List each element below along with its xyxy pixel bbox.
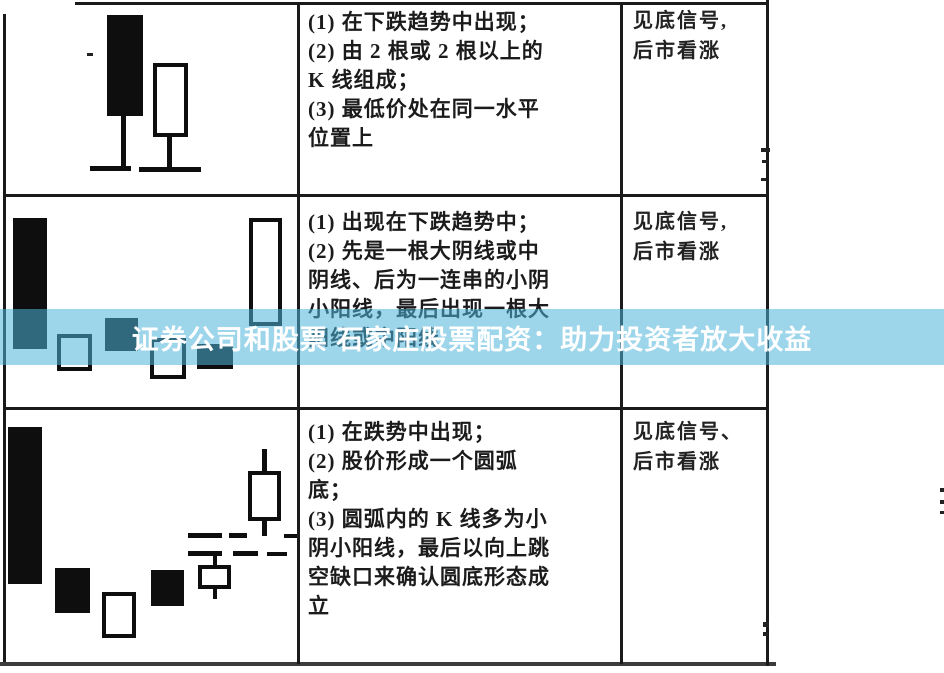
description-line: 底； bbox=[308, 476, 550, 505]
white-candle-body bbox=[198, 565, 231, 589]
description-line: 阴小阳线，最后以向上跳 bbox=[308, 534, 550, 563]
signal-line: 见底信号, bbox=[633, 6, 728, 36]
signal-line: 后市看涨 bbox=[633, 447, 743, 477]
description-line: 阴线、后为一连串的小阴 bbox=[308, 266, 550, 295]
base-level-dash bbox=[139, 167, 201, 172]
signal-cell-row2: 见底信号, 后市看涨 bbox=[633, 207, 728, 267]
signal-line: 见底信号、 bbox=[633, 417, 743, 447]
scan-artifact bbox=[940, 488, 944, 492]
description-line: (1) 在下跌趋势中出现； bbox=[308, 8, 544, 37]
gap-dash bbox=[229, 533, 247, 538]
scan-artifact bbox=[761, 148, 770, 152]
base-level-dash bbox=[90, 166, 131, 171]
white-candle-body bbox=[102, 592, 136, 638]
description-line: (2) 股价形成一个圆弧 bbox=[308, 447, 550, 476]
promo-banner[interactable]: 证券公司和股票 石家庄股票配资：助力投资者放大收益 bbox=[0, 309, 944, 365]
description-line: 空缺口来确认圆底形态成 bbox=[308, 563, 550, 592]
description-line: (1) 在跌势中出现； bbox=[308, 418, 550, 447]
scan-artifact bbox=[763, 632, 768, 636]
description-line: (3) 最低价处在同一水平 bbox=[308, 95, 544, 124]
gap-dash bbox=[284, 534, 297, 538]
candle-lower-wick bbox=[262, 521, 267, 536]
black-candle-body bbox=[8, 427, 42, 584]
scanned-candlestick-table-page: (1) 在下跌趋势中出现； (2) 由 2 根或 2 根以上的 K 线组成； (… bbox=[0, 0, 944, 673]
scan-artifact bbox=[763, 622, 769, 627]
white-candle-body bbox=[248, 471, 281, 521]
candle-lower-wick bbox=[121, 112, 126, 169]
black-candle-body bbox=[107, 15, 143, 116]
gap-dash bbox=[188, 551, 222, 556]
scan-artifact bbox=[761, 178, 766, 181]
candle-lower-wick bbox=[213, 589, 217, 599]
black-candle-body bbox=[55, 568, 90, 613]
signal-line: 后市看涨 bbox=[633, 36, 728, 66]
white-candle-body bbox=[153, 63, 188, 137]
gap-dash bbox=[188, 533, 222, 538]
promo-banner-text: 证券公司和股票 石家庄股票配资：助力投资者放大收益 bbox=[132, 318, 813, 357]
scan-artifact bbox=[940, 511, 944, 514]
description-line: (2) 由 2 根或 2 根以上的 bbox=[308, 37, 544, 66]
description-line: (1) 出现在下跌趋势中； bbox=[308, 208, 550, 237]
scan-artifact bbox=[87, 53, 93, 56]
description-line: 立 bbox=[308, 592, 550, 621]
scan-artifact bbox=[940, 500, 944, 504]
signal-cell-row3: 见底信号、 后市看涨 bbox=[633, 417, 743, 477]
gap-dash bbox=[233, 551, 258, 556]
description-line: (2) 先是一根大阴线或中 bbox=[308, 237, 550, 266]
candle-lower-wick bbox=[167, 134, 172, 170]
gap-dash bbox=[267, 552, 287, 556]
description-cell-row1: (1) 在下跌趋势中出现； (2) 由 2 根或 2 根以上的 K 线组成； (… bbox=[308, 8, 544, 153]
signal-line: 见底信号, bbox=[633, 207, 728, 237]
scan-artifact bbox=[762, 160, 768, 163]
description-line: K 线组成； bbox=[308, 66, 544, 95]
candle-upper-wick bbox=[262, 449, 267, 472]
signal-cell-row1: 见底信号, 后市看涨 bbox=[633, 6, 728, 66]
description-line: (3) 圆弧内的 K 线多为小 bbox=[308, 505, 550, 534]
description-cell-row3: (1) 在跌势中出现； (2) 股价形成一个圆弧 底； (3) 圆弧内的 K 线… bbox=[308, 418, 550, 621]
description-line: 位置上 bbox=[308, 124, 544, 153]
black-candle-body bbox=[151, 570, 184, 606]
signal-line: 后市看涨 bbox=[633, 237, 728, 267]
